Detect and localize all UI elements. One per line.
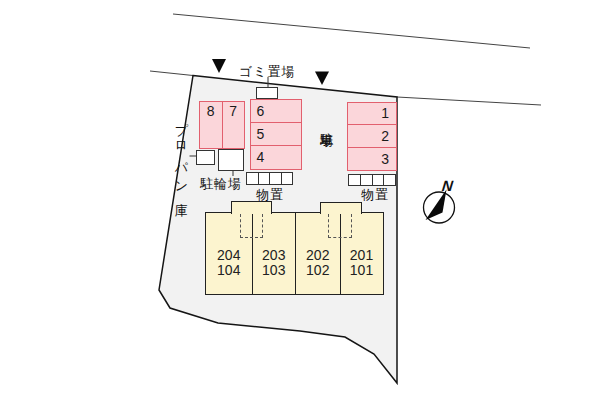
road-edge-line-upper	[173, 14, 530, 48]
site-plan-drawing	[0, 0, 600, 400]
storage-shed-cell	[282, 173, 293, 184]
parking-stall-2: 2	[348, 124, 397, 147]
parking-group-left: 8 7	[199, 101, 245, 149]
compass-needle-icon	[426, 190, 447, 221]
road-edge-line-lower-right	[397, 97, 541, 105]
unit-number-upper: 202	[306, 248, 329, 263]
storage-shed-cell	[361, 175, 373, 186]
parking-lot-label: 駐車場	[317, 122, 335, 125]
storage-shed-cell	[270, 173, 282, 184]
garbage-area-label: ゴミ置場	[239, 63, 296, 81]
parking-stall-8: 8	[200, 102, 222, 148]
stairwell-outline-left	[240, 214, 264, 238]
storage-shed-cell	[247, 173, 259, 184]
parking-stall-1: 1	[348, 103, 397, 125]
road-edge-line-lower-left	[150, 71, 193, 76]
parking-stall-3: 3	[348, 147, 397, 170]
apartment-building: 204 104 203 103 202 102 201 101	[205, 212, 384, 295]
storage-shed-row-left	[246, 172, 293, 185]
unit-number-lower: 104	[217, 263, 240, 278]
unit-number-lower: 101	[350, 263, 373, 278]
garbage-area-box	[256, 87, 278, 100]
parking-stall-7: 7	[222, 102, 245, 148]
storage-shed-cell	[349, 175, 361, 186]
building-entrance-porch-left	[231, 201, 273, 214]
storage-shed-cell	[373, 175, 385, 186]
storage-shed-cell	[384, 175, 395, 186]
propane-storage-box	[196, 150, 215, 166]
bicycle-parking-box	[218, 149, 244, 171]
unit-number-upper: 204	[217, 248, 240, 263]
unit-number-upper: 203	[262, 248, 285, 263]
entrance-marker-triangle-right	[315, 72, 329, 86]
building-entrance-porch-right	[320, 202, 362, 214]
site-plan: ゴミ置場 プロパン庫 駐車場 駐輪場 物置 物置 N 8 7 6 5 4 1 2…	[0, 0, 600, 400]
parking-stall-6: 6	[251, 100, 302, 122]
storage-shed-label-right: 物置	[361, 186, 389, 204]
storage-shed-cell	[259, 173, 271, 184]
bicycle-parking-label: 駐輪場	[200, 175, 242, 193]
storage-shed-row-right	[348, 174, 396, 187]
propane-storage-label: プロパン庫	[172, 113, 190, 197]
parking-group-middle: 6 5 4	[250, 99, 303, 170]
parking-stall-5: 5	[251, 122, 302, 145]
parking-stall-4: 4	[251, 145, 302, 168]
entrance-marker-triangle-left	[212, 59, 226, 73]
north-compass	[424, 190, 455, 224]
stairwell-outline-right	[328, 214, 352, 238]
parking-group-right: 1 2 3	[347, 102, 398, 171]
unit-number-lower: 102	[306, 263, 329, 278]
unit-number-upper: 201	[350, 248, 373, 263]
unit-number-lower: 103	[262, 263, 285, 278]
north-label: N	[441, 177, 454, 194]
